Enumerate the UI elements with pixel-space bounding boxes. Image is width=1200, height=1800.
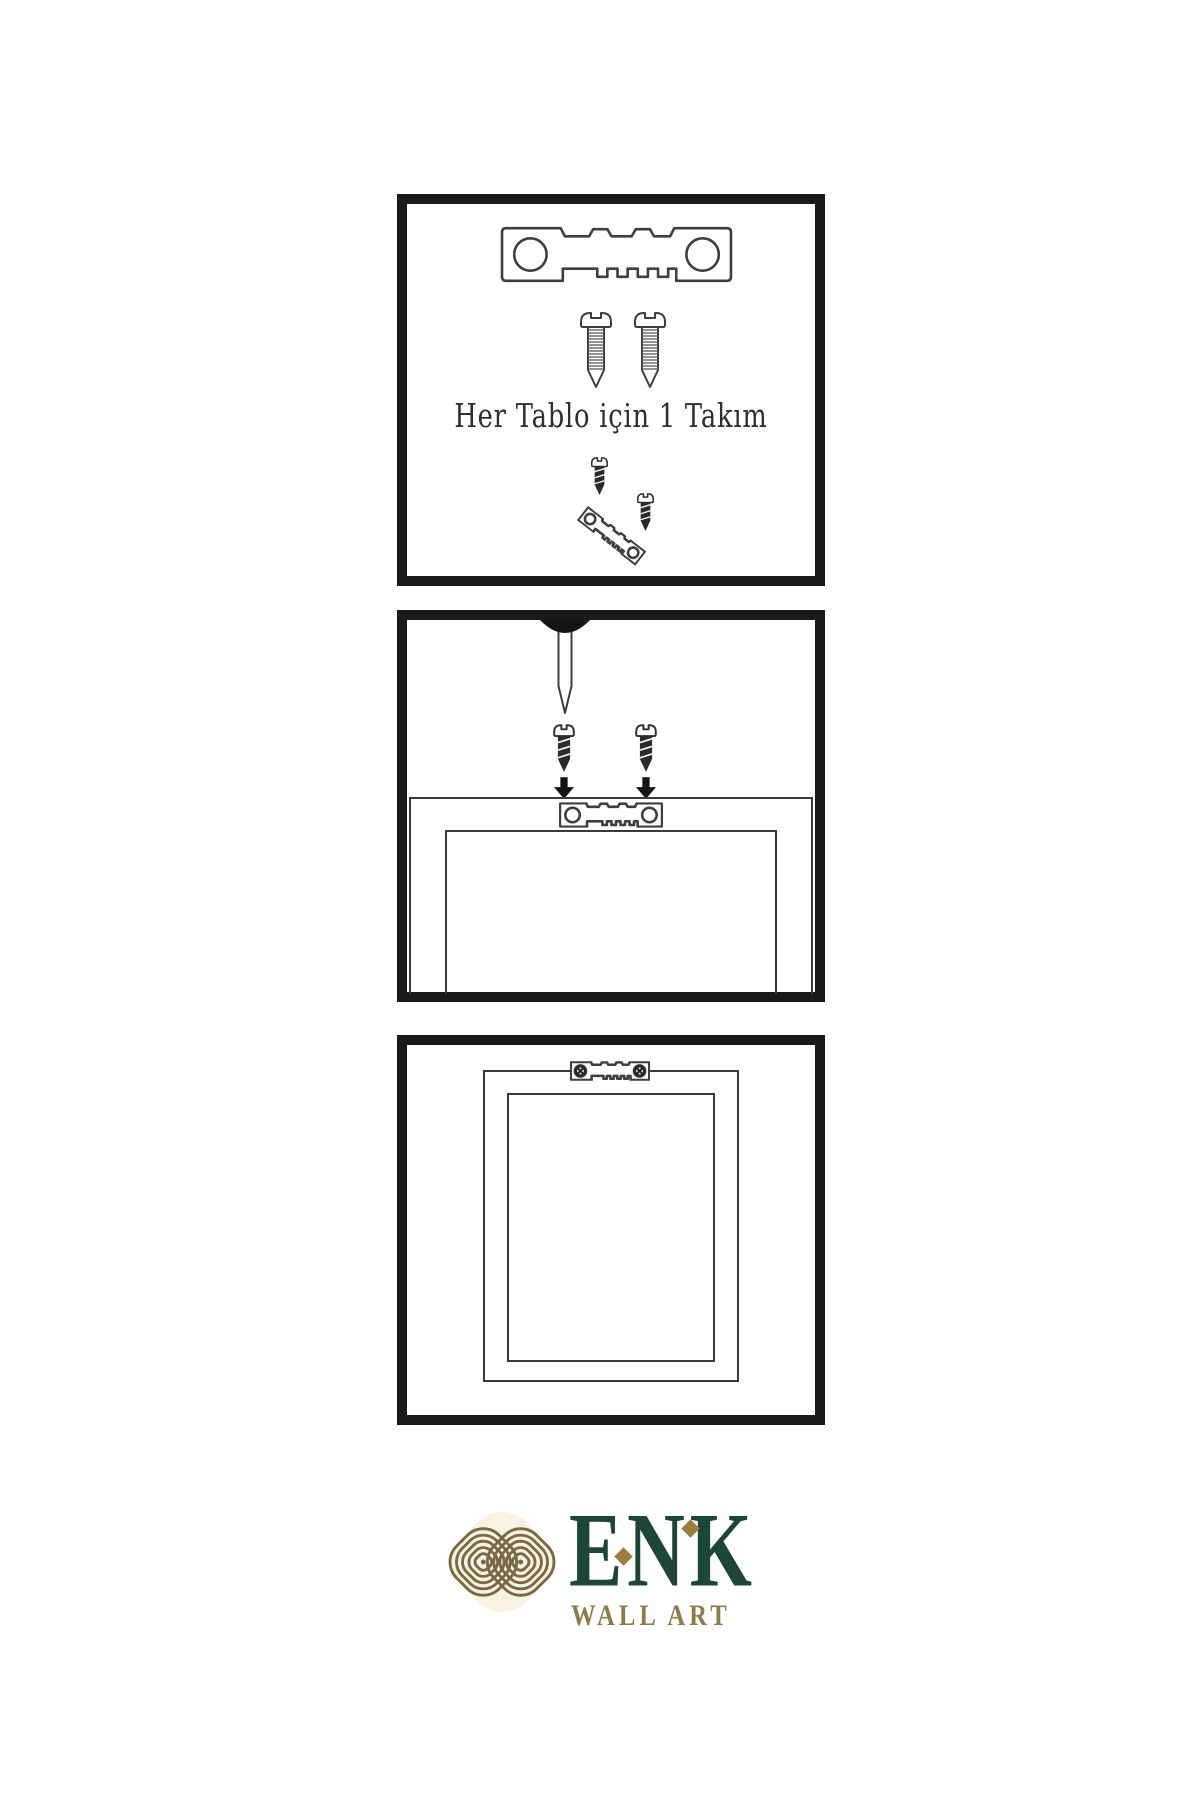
brand-subtitle: WALL ART — [571, 1599, 731, 1633]
sawtooth-hanger-mounted-icon — [570, 1061, 650, 1081]
down-arrow-icon — [554, 777, 574, 799]
hanger-assembly-icon — [582, 456, 666, 568]
screw-dark-icon — [634, 723, 658, 773]
down-arrow-icon — [636, 777, 656, 799]
brand-wordmark: ENK — [569, 1502, 757, 1600]
frame-back-inner-outline — [445, 830, 777, 994]
sawtooth-hanger-icon — [500, 226, 733, 283]
panel-hardware-kit: Her Tablo için 1 Takım — [397, 194, 825, 586]
screw-icon — [578, 308, 614, 392]
instruction-sheet: Her Tablo için 1 Takım — [0, 0, 1200, 1800]
screw-icon — [632, 308, 668, 392]
panel-hung-frame — [397, 1035, 825, 1425]
kit-caption: Her Tablo için 1 Takım — [452, 396, 770, 435]
interlocking-knot-icon — [436, 1496, 568, 1628]
screw-dark-icon — [552, 723, 576, 773]
sawtooth-hanger-icon — [559, 802, 663, 828]
panel-install-step — [397, 610, 825, 1002]
artwork-outline — [507, 1093, 715, 1362]
nail-icon — [539, 620, 591, 720]
